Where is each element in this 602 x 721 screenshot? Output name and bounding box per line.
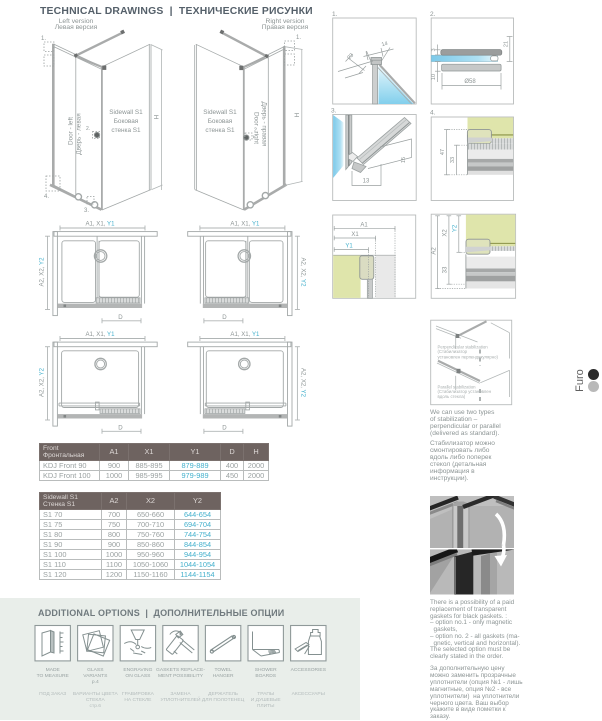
- svg-text:ПОД ЗАКАЗ: ПОД ЗАКАЗ: [39, 691, 66, 697]
- svg-text:BOARDS: BOARDS: [255, 673, 276, 679]
- svg-text:стенка S1: стенка S1: [205, 127, 235, 134]
- svg-text:Door - right: Door - right: [252, 112, 259, 144]
- svg-text:A1: A1: [360, 222, 368, 228]
- svg-text:A2, X2, Y2: A2, X2, Y2: [299, 368, 306, 398]
- svg-text:1.: 1.: [332, 11, 338, 18]
- svg-text:3.: 3.: [331, 108, 337, 115]
- svg-text:ПЛИТЫ: ПЛИТЫ: [257, 703, 275, 709]
- svg-text:И ДУШЕВЫЕ: И ДУШЕВЫЕ: [251, 697, 282, 703]
- svg-text:ACCESSORIES: ACCESSORIES: [291, 667, 327, 673]
- svg-text:A1, X1, Y1: A1, X1, Y1: [230, 331, 260, 338]
- svg-text:33: 33: [450, 157, 456, 163]
- svg-text:A1, X1, Y1: A1, X1, Y1: [230, 221, 260, 228]
- svg-text:1.: 1.: [41, 36, 46, 42]
- svg-text:Боковая: Боковая: [208, 118, 233, 125]
- svg-text:H: H: [154, 114, 161, 119]
- svg-text:НА СТЕКЛЕ: НА СТЕКЛЕ: [124, 697, 152, 703]
- svg-text:A2, X2, Y2: A2, X2, Y2: [39, 257, 46, 287]
- svg-text:стенка S1: стенка S1: [111, 127, 141, 134]
- svg-text:2.: 2.: [430, 11, 436, 18]
- svg-text:ГРАВИРОВКА: ГРАВИРОВКА: [122, 691, 155, 697]
- svg-text:Дверь - правая: Дверь - правая: [260, 102, 267, 147]
- svg-text:A2: A2: [431, 247, 437, 255]
- svg-text:SHOWER: SHOWER: [255, 667, 277, 673]
- svg-text:X2: X2: [443, 229, 449, 237]
- svg-text:ON GLASS: ON GLASS: [125, 673, 151, 679]
- svg-text:A1, X1, Y1: A1, X1, Y1: [85, 331, 115, 338]
- svg-text:Door - left: Door - left: [68, 117, 75, 145]
- svg-text:ДЛЯ ПОЛОТЕНЕЦ: ДЛЯ ПОЛОТЕНЕЦ: [202, 697, 245, 703]
- svg-text:ЗАМЕНА: ЗАМЕНА: [170, 691, 191, 697]
- svg-text:Y2: Y2: [453, 224, 459, 232]
- svg-text:Ø58: Ø58: [464, 79, 476, 85]
- svg-text:GASKETS REPLACE-: GASKETS REPLACE-: [156, 667, 205, 673]
- svg-text:TOWEL: TOWEL: [214, 667, 232, 673]
- svg-text:GLASS: GLASS: [87, 667, 104, 673]
- svg-text:A1, X1, Y1: A1, X1, Y1: [85, 221, 115, 228]
- svg-text:вдоль стекла): вдоль стекла): [438, 394, 466, 399]
- svg-text:MADE: MADE: [46, 667, 61, 673]
- svg-text:D: D: [222, 314, 227, 321]
- svg-text:Боковая: Боковая: [114, 118, 139, 125]
- svg-text:СТЕКЛА: СТЕКЛА: [86, 697, 106, 703]
- svg-text:10: 10: [431, 74, 437, 80]
- svg-text:MENT POSSIBILITY: MENT POSSIBILITY: [158, 673, 204, 679]
- svg-text:A2, X2, Y2: A2, X2, Y2: [299, 257, 306, 287]
- svg-text:3.: 3.: [84, 208, 89, 214]
- svg-text:47: 47: [440, 149, 446, 155]
- svg-text:4.: 4.: [430, 110, 436, 117]
- svg-text:X1: X1: [351, 232, 359, 238]
- svg-text:ТРАПЫ: ТРАПЫ: [257, 691, 274, 697]
- svg-text:33: 33: [443, 266, 449, 273]
- svg-text:Y1: Y1: [345, 244, 353, 250]
- svg-text:установлен перпендикулярно): установлен перпендикулярно): [438, 355, 499, 360]
- svg-text:ВАРИАНТЫ ЦВЕТА: ВАРИАНТЫ ЦВЕТА: [73, 691, 119, 697]
- svg-text:АКСЕССУАРЫ: АКСЕССУАРЫ: [292, 691, 325, 697]
- svg-text:HANGER: HANGER: [213, 673, 234, 679]
- svg-text:p.4: p.4: [92, 679, 99, 685]
- svg-text:A2, X2, Y2: A2, X2, Y2: [39, 367, 46, 397]
- svg-text:Sidewall S1: Sidewall S1: [109, 109, 143, 116]
- svg-text:D: D: [222, 424, 227, 431]
- svg-text:2.: 2.: [86, 126, 90, 132]
- svg-text:H: H: [294, 112, 301, 117]
- svg-text:VARIANTS: VARIANTS: [83, 673, 108, 679]
- svg-text:ДЕРЖАТЕЛЬ: ДЕРЖАТЕЛЬ: [208, 691, 238, 697]
- svg-text:стр.6: стр.6: [90, 703, 102, 709]
- svg-text:D: D: [118, 314, 123, 321]
- svg-text:Дверь - левая: Дверь - левая: [76, 113, 83, 155]
- svg-text:D: D: [118, 424, 123, 431]
- svg-text:15: 15: [401, 157, 407, 163]
- svg-text:Sidewall S1: Sidewall S1: [203, 109, 237, 116]
- svg-text:4.: 4.: [44, 194, 49, 200]
- svg-text:ENGRAVING: ENGRAVING: [123, 667, 152, 673]
- svg-text:13: 13: [363, 179, 370, 185]
- svg-text:1.: 1.: [296, 35, 301, 41]
- svg-text:TO MEASURE: TO MEASURE: [37, 673, 70, 679]
- svg-text:(Стабилизатор: (Стабилизатор: [438, 349, 468, 354]
- svg-text:3: 3: [431, 48, 437, 51]
- svg-text:21: 21: [504, 41, 510, 47]
